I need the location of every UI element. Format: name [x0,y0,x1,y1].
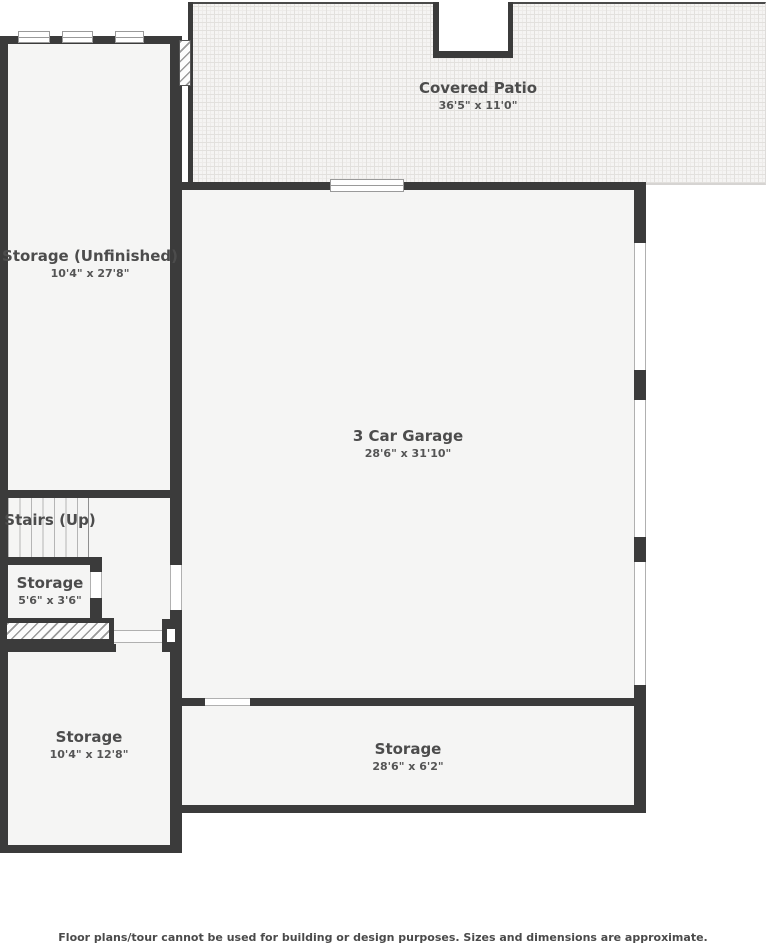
room-dims: 28'6" x 31'10" [298,447,518,461]
room-label-storage-small: Storage 5'6" x 3'6" [0,574,100,608]
window [62,31,93,43]
storage-stairs-divider-wall [0,490,182,498]
disclaimer-text: Floor plans/tour cannot be used for buil… [0,931,766,943]
room-label-garage: 3 Car Garage 28'6" x 31'10" [298,427,518,461]
room-dims: 10'4" x 12'8" [0,748,178,762]
room-name: 3 Car Garage [298,427,518,446]
window-opening [634,400,646,537]
floor-plan: Covered Patio 36'5" x 11'0" Storage (Unf… [0,0,766,943]
room-name: Covered Patio [368,79,588,98]
garage-right-wall-segment [634,537,646,562]
room-name: Storage (Unfinished) [0,247,180,266]
room-label-covered-patio: Covered Patio 36'5" x 11'0" [368,79,588,113]
room-dims: 10'4" x 27'8" [0,267,180,281]
patio-notch-cutout [433,2,513,58]
window-opening [634,243,646,370]
door-opening [112,630,164,643]
window-opening [634,562,646,685]
hatched-stoop-icon [2,618,114,644]
left-wing-floor [8,44,170,845]
room-label-stairs: Stairs (Up) [2,511,98,530]
stairs-storage-divider-wall [0,557,102,565]
window [330,179,404,192]
room-name: Stairs (Up) [2,511,98,530]
room-label-storage-bottom-left: Storage 10'4" x 12'8" [0,728,178,762]
room-label-storage-unfinished: Storage (Unfinished) 10'4" x 27'8" [0,247,180,281]
garage-floor [182,190,634,805]
room-dims: 36'5" x 11'0" [368,99,588,113]
room-label-storage-bottom: Storage 28'6" x 6'2" [298,740,518,774]
room-name: Storage [298,740,518,759]
door-opening [205,698,250,706]
garage-right-wall-segment [634,370,646,400]
bottom-storage-bottom-wall [170,805,646,813]
door-jamb-inner [167,629,175,642]
window [18,31,50,43]
room-dims: 28'6" x 6'2" [298,760,518,774]
hatched-entry-strip-icon [179,40,191,86]
garage-right-wall-segment [634,182,646,243]
room-name: Storage [0,728,178,747]
bottom-left-wall [0,845,182,853]
patio-left-wall [188,2,193,185]
window [115,31,144,43]
garage-top-wall [170,182,646,190]
room-dims: 5'6" x 3'6" [0,594,100,608]
room-name: Storage [0,574,100,593]
stoop-bottom-wall [0,644,116,652]
door-opening [170,565,182,610]
